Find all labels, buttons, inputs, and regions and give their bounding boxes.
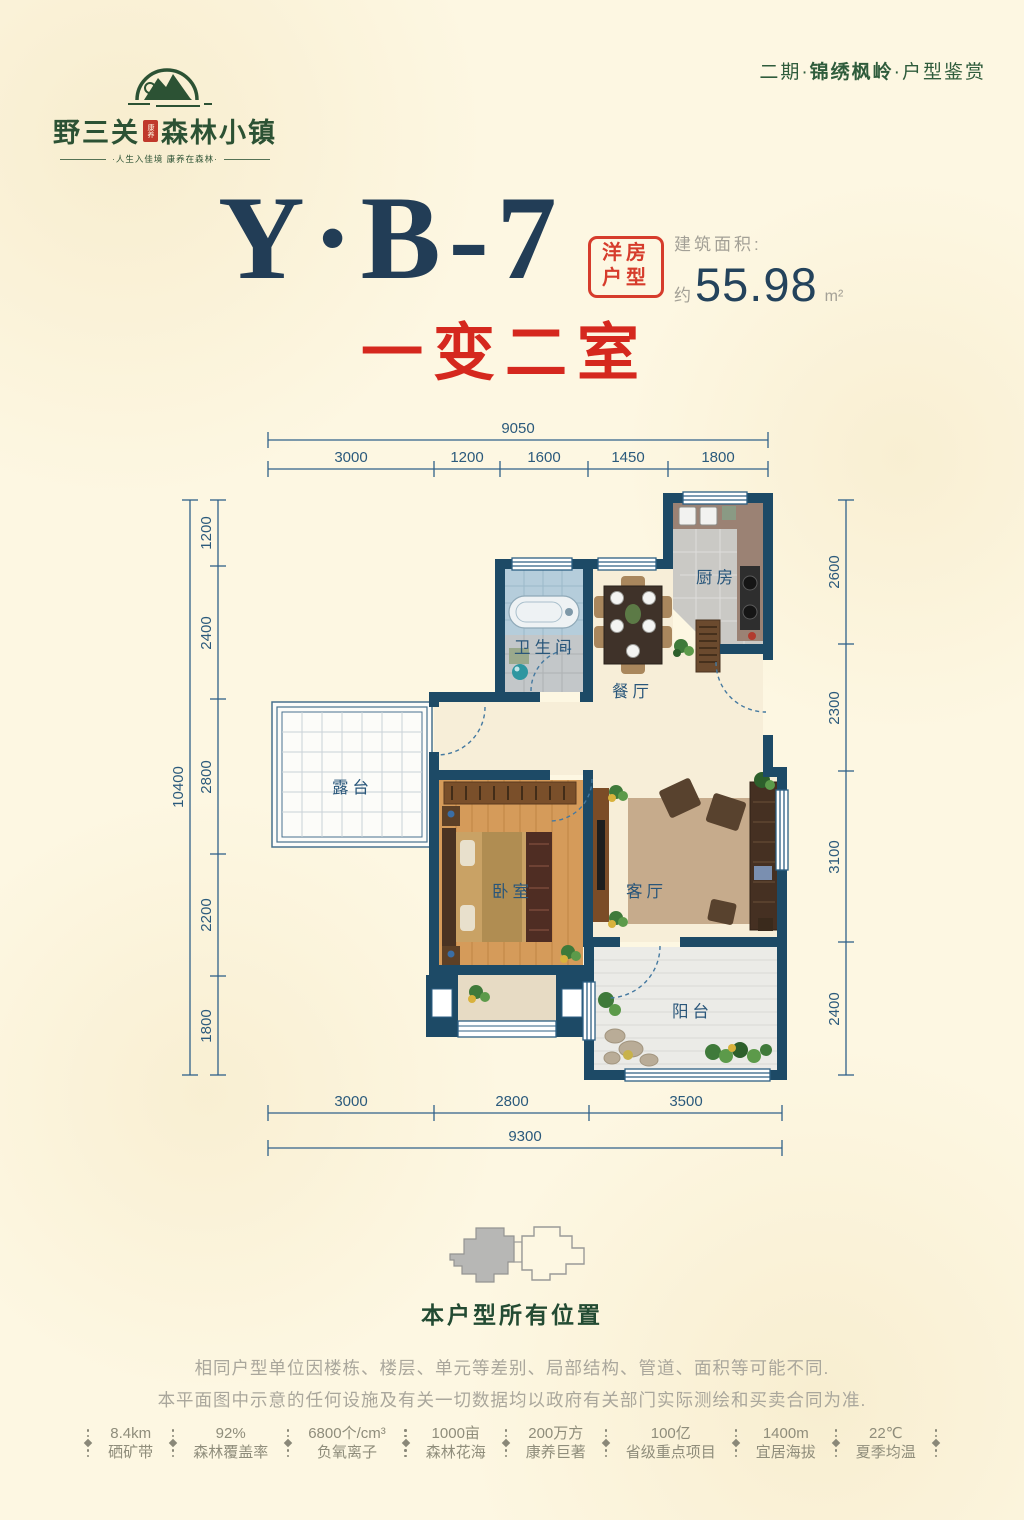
stamp-line-2: 户型 bbox=[594, 266, 658, 291]
building-outline-icon bbox=[412, 1212, 612, 1292]
dim-top-total: 9050 bbox=[501, 420, 534, 437]
svg-text:2300: 2300 bbox=[826, 691, 843, 724]
svg-text:1200: 1200 bbox=[198, 516, 215, 549]
stat-item: 200万方康养巨著 bbox=[509, 1424, 603, 1462]
disclaimer-line-1: 相同户型单位因楼栋、楼层、单元等差别、局部结构、管道、面积等可能不同. bbox=[0, 1352, 1024, 1384]
tagline-text: ·人生入佳境 康养在森林· bbox=[112, 153, 218, 165]
svg-text:2600: 2600 bbox=[826, 555, 843, 588]
svg-text:1200: 1200 bbox=[450, 449, 483, 466]
layout-subtitle: 一变二室 bbox=[0, 302, 1010, 392]
stat-separator bbox=[933, 1429, 939, 1457]
logo-name-pre: 野三关 bbox=[53, 111, 140, 150]
floorplan: 厨房 卫生间 餐厅 露台 卧室 客厅 阳台 9050 3000 1200 bbox=[160, 400, 880, 1170]
svg-text:2400: 2400 bbox=[198, 616, 215, 649]
dining-set bbox=[594, 576, 672, 674]
stat-item: 1400m宜居海拔 bbox=[739, 1424, 833, 1462]
logo-mountain-icon bbox=[40, 48, 290, 110]
stat-item: 100亿省级重点项目 bbox=[609, 1424, 733, 1462]
room-label-balcony: 阳台 bbox=[672, 1002, 713, 1021]
stat-item: 8.4km硒矿带 bbox=[91, 1424, 170, 1462]
stamp-line-1: 洋房 bbox=[594, 241, 658, 266]
svg-text:2800: 2800 bbox=[198, 760, 215, 793]
svg-text:2400: 2400 bbox=[826, 992, 843, 1025]
svg-text:1800: 1800 bbox=[198, 1009, 215, 1042]
project-stats: 8.4km硒矿带 92%森林覆盖率 6800个/cm³负氧离子 1000亩森林花… bbox=[0, 1424, 1024, 1462]
logo-name: 野三关 康养 森林小镇 bbox=[40, 111, 290, 150]
stat-item: 22℃夏季均温 bbox=[839, 1424, 933, 1462]
building-locator: 本户型所有位置 bbox=[0, 1212, 1024, 1330]
svg-text:3500: 3500 bbox=[669, 1093, 702, 1110]
stat-item: 1000亩森林花海 bbox=[409, 1424, 503, 1462]
logo-tagline: ·人生入佳境 康养在森林· bbox=[40, 153, 290, 165]
area-label: 建筑面积: bbox=[674, 230, 843, 255]
svg-text:3100: 3100 bbox=[826, 840, 843, 873]
logo-seal: 康养 bbox=[143, 120, 158, 142]
svg-text:1600: 1600 bbox=[527, 449, 560, 466]
disclaimer: 相同户型单位因楼栋、楼层、单元等差别、局部结构、管道、面积等可能不同. 本平面图… bbox=[0, 1352, 1024, 1416]
brand-logo: 野三关 康养 森林小镇 ·人生入佳境 康养在森林· bbox=[40, 48, 290, 165]
unit-type-stamp: 洋房 户型 bbox=[588, 236, 664, 298]
edition-pre: 二期· bbox=[759, 62, 809, 83]
built-area: 建筑面积: 约 55.98 m² bbox=[674, 230, 843, 312]
room-label-living: 客厅 bbox=[626, 882, 667, 901]
room-label-terrace: 露台 bbox=[332, 778, 373, 797]
unit-title: Y·B-7 bbox=[218, 172, 565, 304]
svg-text:2200: 2200 bbox=[198, 898, 215, 931]
locator-caption: 本户型所有位置 bbox=[421, 1296, 603, 1330]
svg-text:2800: 2800 bbox=[495, 1093, 528, 1110]
poster-page: { "header": { "logo_pre": "野三关", "logo_s… bbox=[0, 0, 1024, 1520]
dim-bottom-total: 9300 bbox=[508, 1128, 541, 1145]
dim-left-total: 10400 bbox=[170, 766, 187, 808]
edition-post: ·户型鉴赏 bbox=[894, 62, 986, 83]
bedroom-bay-window bbox=[426, 975, 588, 1037]
svg-text:3000: 3000 bbox=[334, 1093, 367, 1110]
room-label-bedroom: 卧室 bbox=[492, 882, 533, 901]
stat-item: 6800个/cm³负氧离子 bbox=[291, 1424, 403, 1462]
room-label-kitchen: 厨房 bbox=[696, 568, 737, 587]
stat-item: 92%森林覆盖率 bbox=[176, 1424, 285, 1462]
room-label-dining: 餐厅 bbox=[612, 682, 653, 701]
logo-name-post: 森林小镇 bbox=[161, 111, 277, 150]
edition-line: 二期·锦绣枫岭·户型鉴赏 bbox=[759, 57, 986, 84]
svg-text:1450: 1450 bbox=[611, 449, 644, 466]
svg-text:1800: 1800 bbox=[701, 449, 734, 466]
svg-text:3000: 3000 bbox=[334, 449, 367, 466]
room-label-bathroom: 卫生间 bbox=[514, 638, 576, 657]
disclaimer-line-2: 本平面图中示意的任何设施及有关一切数据均以政府有关部门实际测绘和买卖合同为准. bbox=[0, 1384, 1024, 1416]
edition-highlight: 锦绣枫岭 bbox=[810, 62, 894, 83]
terrace bbox=[272, 702, 432, 847]
tagline-rule-right bbox=[224, 159, 270, 160]
tagline-rule-left bbox=[60, 159, 106, 160]
